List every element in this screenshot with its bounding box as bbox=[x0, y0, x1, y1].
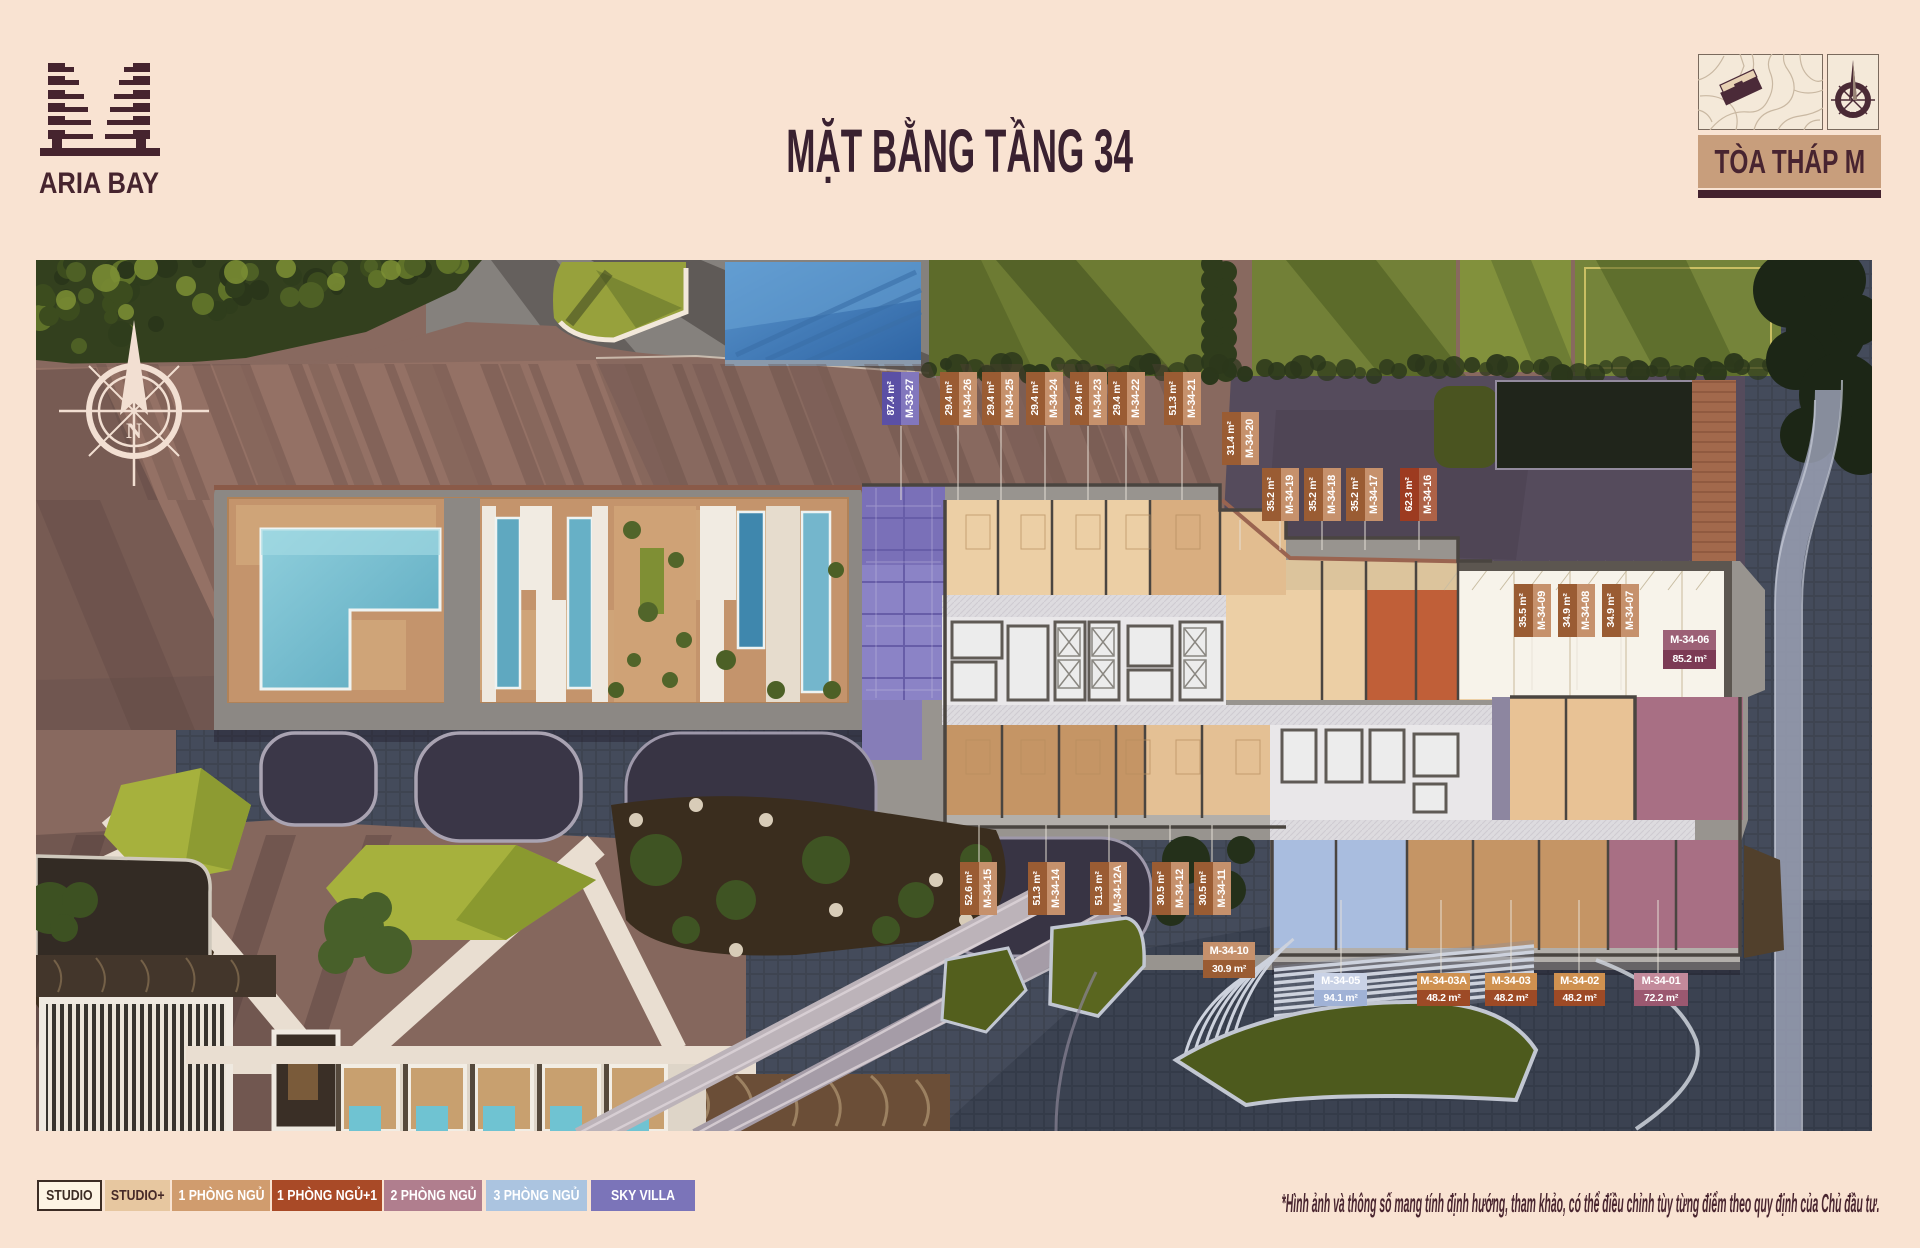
svg-text:N: N bbox=[1849, 104, 1856, 115]
